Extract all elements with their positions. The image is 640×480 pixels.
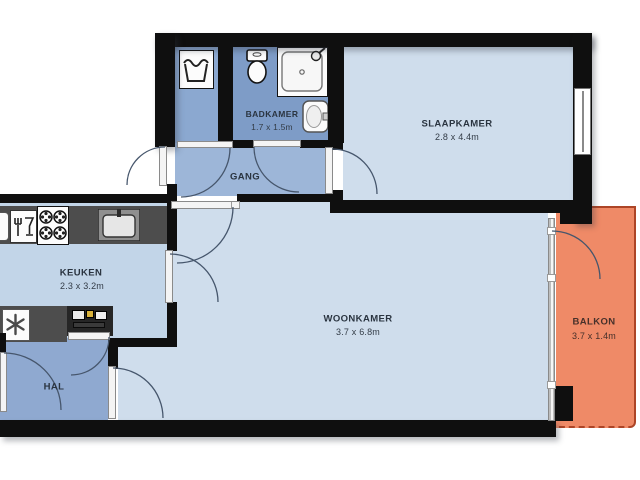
room-dims-balcony: 3.7 x 1.4m: [572, 331, 616, 341]
toilet-icon: [246, 49, 268, 85]
room-dims-livingroom: 3.7 x 6.8m: [336, 327, 380, 337]
wall-corridor-north-a: [232, 140, 254, 148]
bathroom-sink-icon: [302, 100, 329, 133]
balcony-door-hinge: [547, 227, 556, 235]
freezer-icon: [2, 309, 30, 341]
room-livingroom: [118, 202, 548, 420]
electrical-panel-icon: [72, 310, 85, 320]
room-corridor: [175, 143, 330, 196]
meter-rail: [73, 322, 105, 328]
room-label-hall: HAL: [44, 382, 65, 393]
wall-bottom-exterior: [0, 420, 556, 437]
wall-bedroom-south: [330, 200, 592, 213]
wall-balcony-corner: [560, 213, 592, 224]
room-label-bathroom: BADKAMER: [246, 109, 299, 119]
wall-kitchen-north: [0, 194, 177, 203]
bathroom-door-threshold: [253, 140, 301, 147]
kitchen-appliance-partial: [0, 212, 9, 241]
room-dims-kitchen: 2.3 x 3.2m: [60, 281, 104, 291]
glass-wall-joint-b: [547, 381, 556, 389]
hall-livingroom-door-leaf: [108, 366, 116, 419]
wall-kitchen-east-a: [167, 203, 177, 251]
room-label-kitchen: KEUKEN: [60, 268, 103, 279]
front-door-leaf: [159, 146, 167, 186]
room-label-bedroom: SLAAPKAMER: [421, 119, 492, 130]
bedroom-window: [574, 88, 591, 155]
fuse-box-icon: [95, 311, 107, 320]
wall-hall-north: [113, 338, 177, 347]
wall-bathroom-bedroom: [328, 43, 344, 143]
balcony-glass-wall: [548, 218, 555, 421]
wall-corridor-south: [237, 194, 330, 202]
room-hall: [0, 338, 108, 420]
room-dims-bedroom: 2.8 x 4.4m: [435, 132, 479, 142]
wall-laundry-bathroom: [218, 43, 233, 143]
door-jamb-ticks: [231, 202, 240, 208]
wall-hall-west-stub: [0, 333, 6, 353]
room-label-livingroom: WOONKAMER: [323, 314, 392, 325]
floor-plan: BADKAMER 1.7 x 1.5m SLAAPKAMER 2.8 x 4.4…: [0, 0, 640, 480]
shower-icon: [277, 47, 328, 97]
meter-cabinet-door-leaf: [68, 332, 110, 340]
dishwasher-icon: [10, 210, 37, 243]
corridor-livingroom-door: [171, 201, 240, 209]
glass-wall-joint-a: [547, 274, 556, 282]
glass-pane-line: [551, 219, 553, 420]
electrical-meter-icon: [86, 310, 94, 318]
laundry-door-threshold: [177, 141, 233, 148]
kitchen-door-leaf: [165, 250, 173, 303]
washing-machine-glyph: [180, 51, 212, 87]
room-dims-bathroom: 1.7 x 1.5m: [251, 122, 293, 132]
window-pane-line: [582, 91, 584, 152]
room-label-corridor: GANG: [230, 172, 260, 183]
wall-left-upper-exterior: [155, 33, 175, 147]
washing-machine-icon: [179, 50, 214, 89]
room-label-balcony: BALKON: [572, 317, 615, 328]
hall-entrance-door-leaf: [0, 352, 7, 412]
wall-hall-east: [108, 338, 118, 369]
stove-icon: [37, 206, 69, 245]
kitchen-sink-icon: [98, 209, 140, 241]
bedroom-door-leaf: [325, 147, 333, 194]
